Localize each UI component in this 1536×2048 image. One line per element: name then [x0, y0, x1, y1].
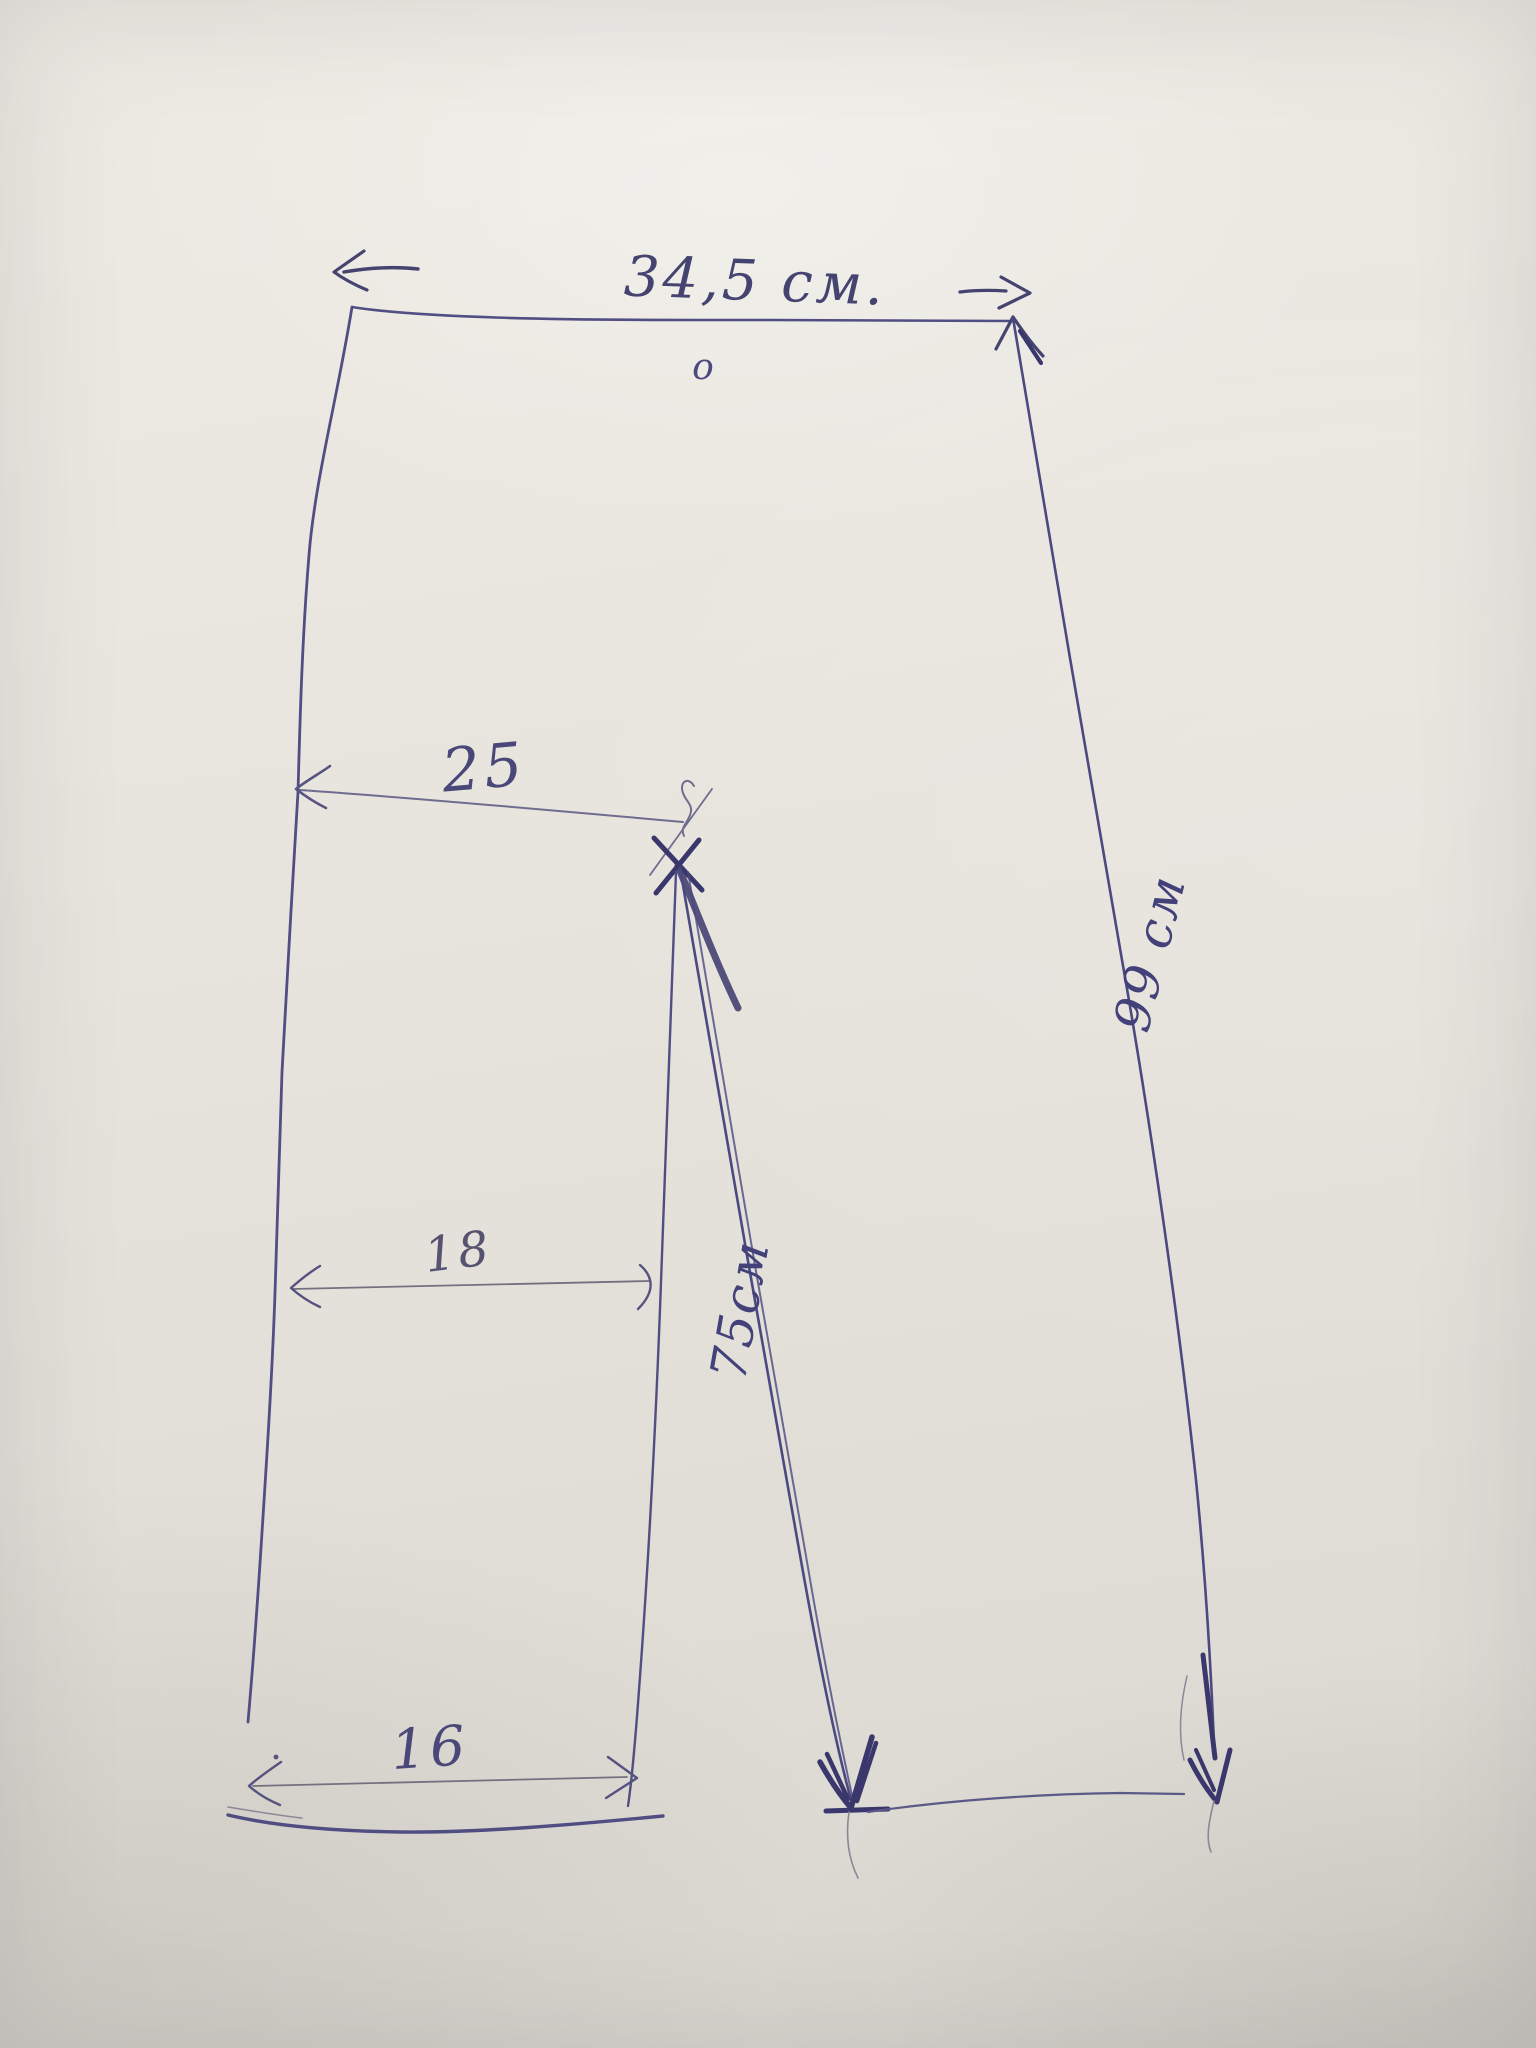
hem-width-label: 16	[389, 1718, 471, 1778]
knee-width-label: 18	[422, 1224, 494, 1280]
waist-width-label: 34,5 см.	[623, 249, 887, 314]
left-hem-line	[228, 1807, 663, 1832]
left-leg-inseam-edge	[628, 872, 676, 1806]
waist-center-mark: о	[692, 350, 714, 386]
outseam-dimension-line	[996, 317, 1214, 1745]
top-dimension-arrow-left	[334, 251, 418, 290]
right-hem-line	[868, 1793, 1184, 1812]
inseam-bottom-arrow	[820, 1737, 888, 1878]
left-outseam-line	[248, 307, 352, 1722]
outseam-bottom-arrow	[1180, 1655, 1230, 1852]
paper-sheet: 34,5 см. о 25 18 16 75см 99 см	[0, 0, 1536, 2048]
top-dimension-arrow-right	[960, 277, 1030, 308]
hip-width-label: 25	[439, 734, 528, 801]
